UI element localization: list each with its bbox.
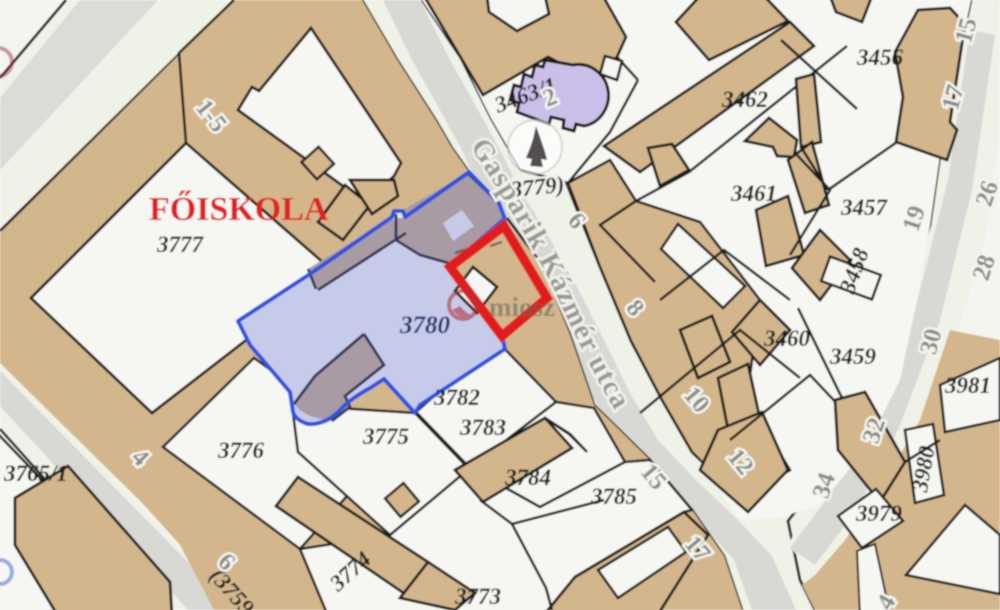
svg-text:3462: 3462 <box>721 87 768 112</box>
svg-text:3765/1: 3765/1 <box>3 461 68 486</box>
svg-text:miosz: miosz <box>489 292 555 322</box>
svg-text:FŐISKOLA: FŐISKOLA <box>149 190 329 228</box>
svg-text:3456: 3456 <box>856 45 904 70</box>
svg-text:3459: 3459 <box>829 344 877 369</box>
svg-text:3776: 3776 <box>217 438 265 463</box>
svg-text:3784: 3784 <box>504 465 551 490</box>
svg-text:3773: 3773 <box>454 584 501 609</box>
svg-text:3783: 3783 <box>459 415 506 440</box>
svg-text:3782: 3782 <box>433 385 480 410</box>
svg-text:3785: 3785 <box>590 484 637 509</box>
svg-text:3775: 3775 <box>362 424 409 449</box>
svg-text:3981: 3981 <box>944 373 991 398</box>
svg-text:3777: 3777 <box>156 232 205 257</box>
svg-text:3457: 3457 <box>840 195 889 220</box>
svg-text:3780: 3780 <box>399 312 451 339</box>
svg-text:3460: 3460 <box>763 326 811 351</box>
svg-text:3979: 3979 <box>855 501 903 526</box>
svg-text:3461: 3461 <box>730 181 777 206</box>
